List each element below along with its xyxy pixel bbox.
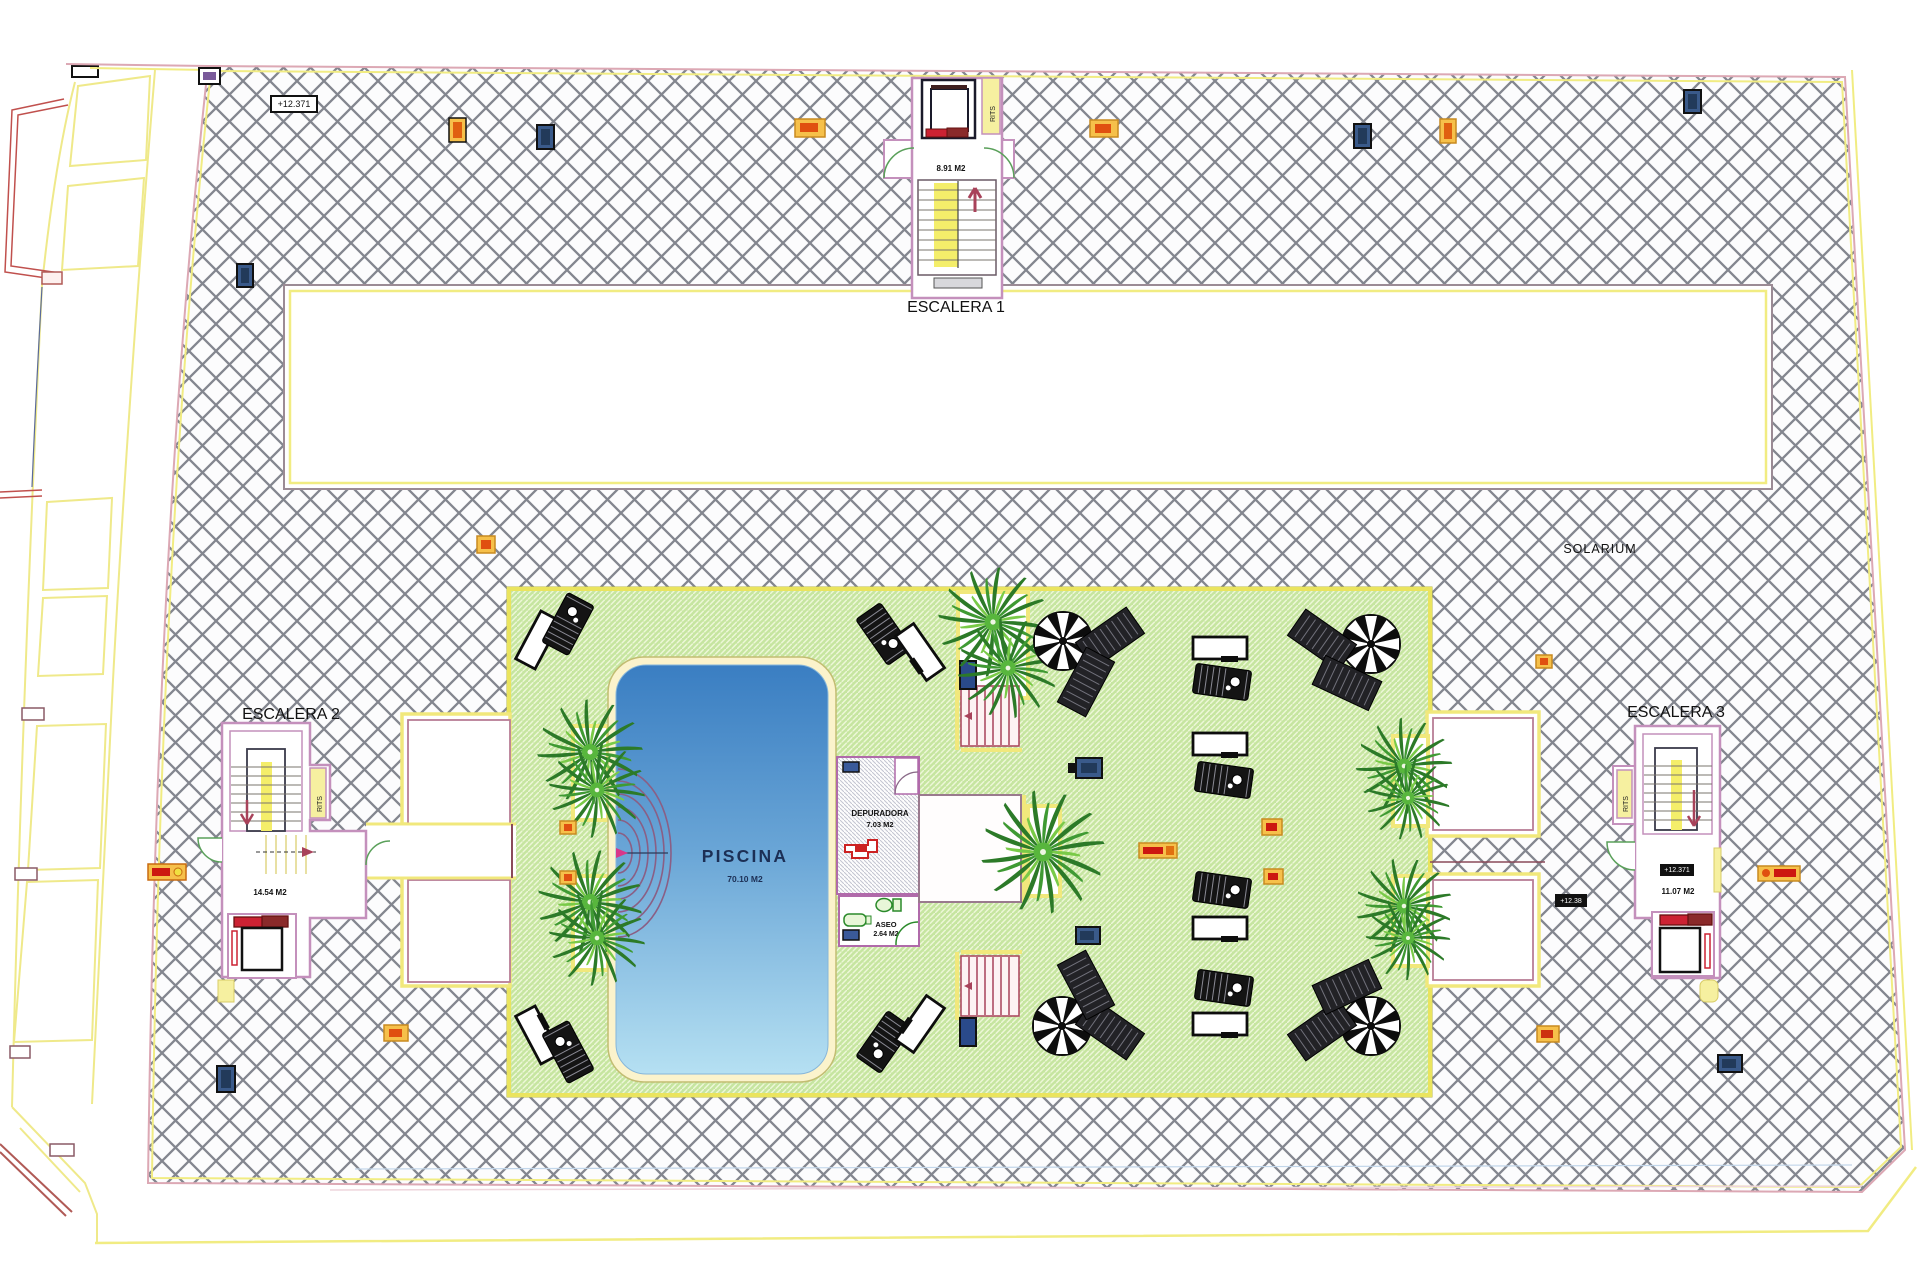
svg-text:RITS: RITS (317, 796, 324, 812)
svg-text:ESCALERA 3: ESCALERA 3 (1627, 704, 1725, 721)
svg-text:+12.371: +12.371 (1664, 867, 1690, 874)
svg-text:+12.371: +12.371 (278, 99, 311, 109)
svg-text:RITS: RITS (1623, 796, 1630, 812)
svg-text:ASEO: ASEO (875, 920, 896, 929)
svg-text:14.54 M2: 14.54 M2 (253, 888, 287, 897)
svg-text:SOLARIUM: SOLARIUM (1563, 542, 1636, 556)
svg-text:11.07 M2: 11.07 M2 (1662, 887, 1695, 896)
svg-text:+12.38: +12.38 (1560, 898, 1582, 905)
svg-text:ESCALERA 2: ESCALERA 2 (242, 706, 340, 723)
svg-text:DEPURADORA: DEPURADORA (851, 809, 909, 818)
svg-text:7.03 M2: 7.03 M2 (866, 820, 893, 829)
svg-text:2.64 M2: 2.64 M2 (873, 931, 898, 938)
svg-text:8.91 M2: 8.91 M2 (937, 164, 966, 173)
svg-text:RITS: RITS (990, 106, 997, 122)
svg-text:ESCALERA 1: ESCALERA 1 (907, 299, 1005, 316)
svg-text:70.10 M2: 70.10 M2 (727, 874, 763, 884)
svg-text:PISCINA: PISCINA (702, 846, 788, 866)
